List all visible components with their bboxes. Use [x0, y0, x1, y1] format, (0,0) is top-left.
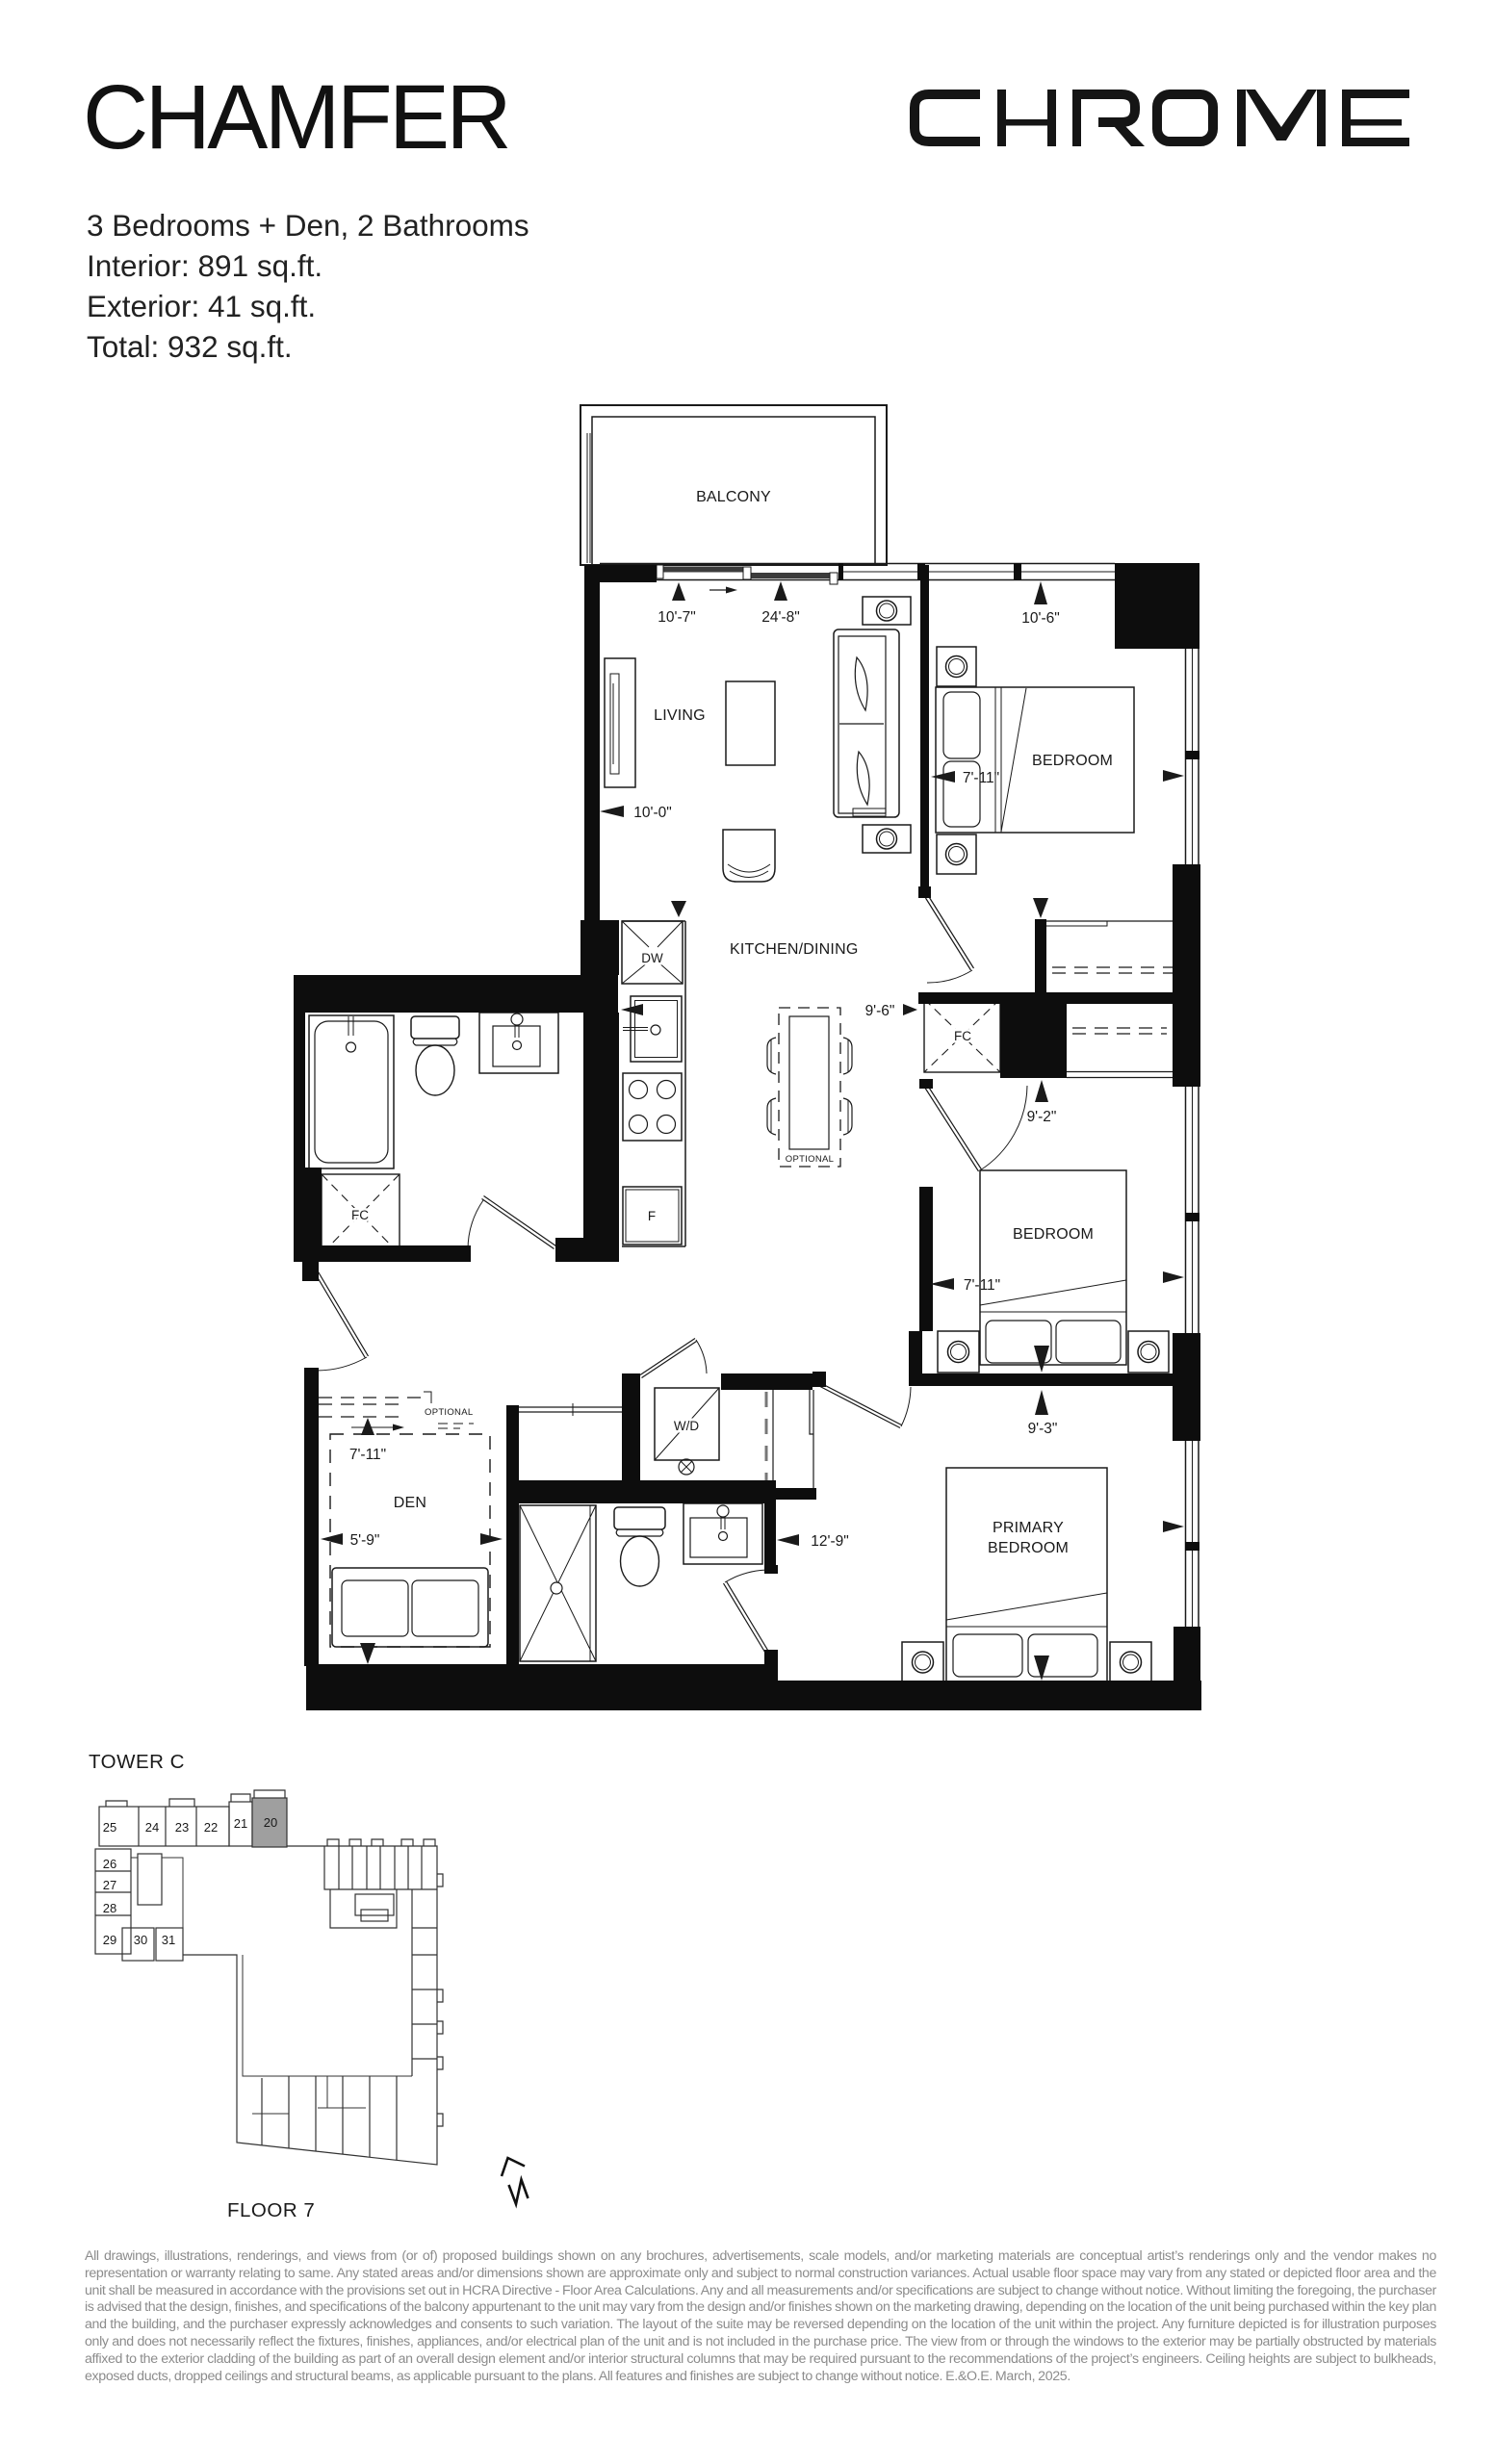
svg-text:FC: FC	[954, 1029, 971, 1043]
svg-text:25: 25	[103, 1820, 116, 1835]
svg-text:W/D: W/D	[674, 1419, 699, 1433]
svg-text:20: 20	[264, 1815, 277, 1830]
svg-text:7'-11": 7'-11"	[963, 770, 999, 786]
svg-text:24: 24	[145, 1820, 159, 1835]
svg-text:KITCHEN/DINING: KITCHEN/DINING	[730, 941, 858, 958]
svg-text:24'-8": 24'-8"	[761, 609, 799, 626]
svg-text:28: 28	[103, 1901, 116, 1915]
svg-text:7'-11": 7'-11"	[349, 1447, 386, 1463]
svg-text:BEDROOM: BEDROOM	[1032, 753, 1113, 769]
svg-text:5'-9": 5'-9"	[350, 1532, 380, 1549]
svg-text:LIVING: LIVING	[654, 707, 706, 724]
svg-text:31: 31	[162, 1933, 175, 1947]
svg-text:10'-7": 10'-7"	[658, 609, 695, 626]
svg-text:DEN: DEN	[394, 1495, 426, 1511]
svg-text:12'-9": 12'-9"	[811, 1533, 848, 1550]
svg-text:OPTIONAL: OPTIONAL	[786, 1154, 834, 1165]
svg-text:BALCONY: BALCONY	[696, 489, 771, 505]
svg-text:7'-11": 7'-11"	[964, 1277, 1000, 1294]
svg-text:TOWER C: TOWER C	[89, 1751, 185, 1773]
svg-text:30: 30	[134, 1933, 147, 1947]
svg-text:BEDROOM: BEDROOM	[1013, 1226, 1094, 1243]
svg-text:21: 21	[234, 1816, 247, 1831]
svg-text:BEDROOM: BEDROOM	[988, 1540, 1069, 1556]
svg-text:22: 22	[204, 1820, 218, 1835]
svg-text:9'-6": 9'-6"	[865, 1003, 895, 1019]
svg-text:9'-3": 9'-3"	[1028, 1421, 1058, 1437]
svg-text:FLOOR 7: FLOOR 7	[227, 2199, 315, 2221]
svg-text:10'-6": 10'-6"	[1021, 610, 1059, 627]
svg-text:FC: FC	[351, 1208, 369, 1222]
svg-text:26: 26	[103, 1857, 116, 1871]
svg-text:27: 27	[103, 1878, 116, 1892]
svg-text:F: F	[648, 1209, 656, 1223]
svg-text:9'-2": 9'-2"	[1027, 1109, 1057, 1125]
svg-text:DW: DW	[641, 951, 663, 965]
svg-text:29: 29	[103, 1933, 116, 1947]
svg-text:OPTIONAL: OPTIONAL	[425, 1407, 473, 1418]
svg-text:PRIMARY: PRIMARY	[993, 1520, 1064, 1536]
svg-text:10'-0": 10'-0"	[633, 805, 671, 821]
svg-text:23: 23	[175, 1820, 189, 1835]
